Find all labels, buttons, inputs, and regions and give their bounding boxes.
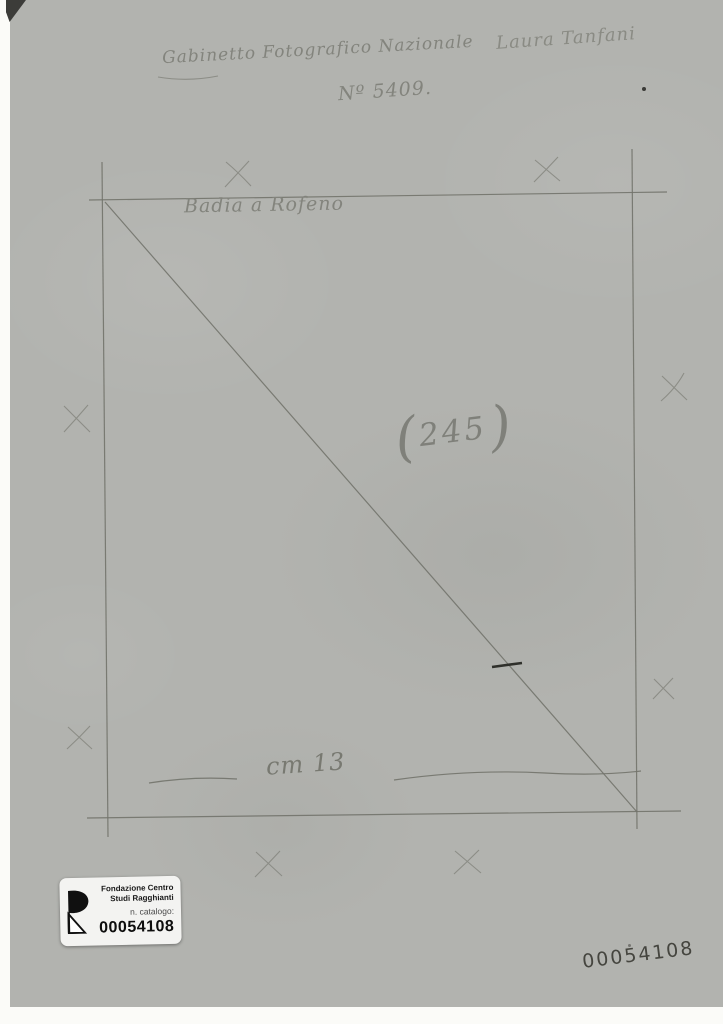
archive-label: Fondazione Centro Studi Ragghianti n. ca…	[59, 876, 181, 947]
circled-number: 245	[414, 410, 492, 455]
label-org-line2: Studi Ragghianti	[96, 893, 174, 905]
paper-speck	[642, 87, 646, 91]
ragghianti-logo-icon	[60, 890, 97, 935]
measurement-inscription: cm 13	[265, 747, 346, 780]
circled-number-inscription: ( 245 )	[394, 386, 513, 479]
label-catalog-number: 00054108	[96, 917, 174, 939]
scanned-photo-verso: { "verso": { "institution": "Gabinetto F…	[0, 0, 723, 1024]
caption-inscription: Badia a Rofeno	[184, 193, 344, 218]
paper-sheet	[10, 0, 723, 1007]
